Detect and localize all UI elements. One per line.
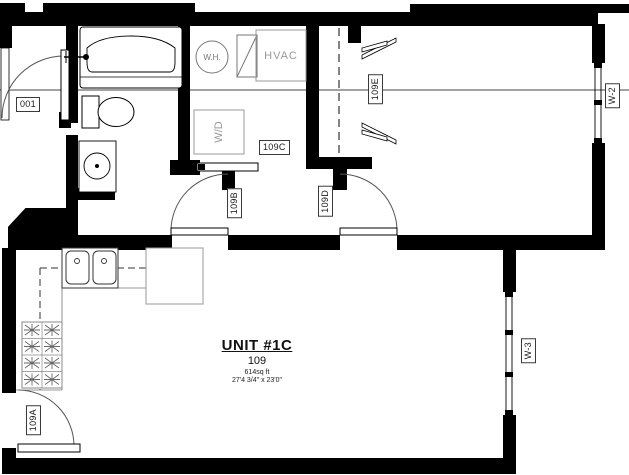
bifold-symbol-bottom — [362, 123, 396, 144]
bathtub — [64, 27, 182, 88]
door-109d — [340, 174, 397, 235]
kitchen-sink — [62, 248, 118, 288]
unit-number: 109 — [182, 355, 332, 367]
washer-dryer-label: W/D — [213, 121, 225, 142]
window-label-w2: W-2 — [605, 83, 620, 108]
unit-area: 614sq ft — [182, 369, 332, 376]
water-heater-label: W.H. — [203, 53, 220, 62]
hvac-label: HVAC — [264, 50, 298, 62]
door-label-109b: 109B — [227, 188, 242, 218]
unit-title-block: UNIT #1C 109 614sq ft 27'4 3/4" x 23'0" — [182, 337, 332, 384]
vanity-sink — [79, 141, 116, 192]
range-stove — [22, 322, 62, 388]
window-w2 — [594, 63, 602, 143]
window-label-w3: W-3 — [521, 338, 536, 363]
door-109b — [171, 174, 228, 235]
window-w3 — [505, 292, 513, 415]
laundry-slider-door — [197, 163, 258, 171]
hvac-unit: HVAC — [256, 30, 306, 81]
door-label-001: 001 — [16, 97, 40, 112]
furnace — [237, 35, 257, 77]
bifold-symbol-top — [362, 38, 396, 59]
kitchen — [16, 248, 203, 390]
room-label-109e: 109E — [368, 74, 383, 104]
door-label-109d: 109D — [318, 186, 333, 217]
fixture-layer: W.H. HVAC W/D — [0, 0, 629, 475]
unit-dimensions: 27'4 3/4" x 23'0" — [182, 377, 332, 384]
unit-name: UNIT #1C — [182, 337, 332, 354]
floor-plan: W.H. HVAC W/D — [0, 0, 629, 475]
water-heater: W.H. — [196, 41, 228, 73]
toilet — [82, 96, 134, 128]
refrigerator — [146, 248, 203, 304]
room-label-109c: 109C — [259, 140, 290, 155]
door-label-109a: 109A — [26, 405, 41, 435]
washer-dryer: W/D — [194, 110, 244, 154]
